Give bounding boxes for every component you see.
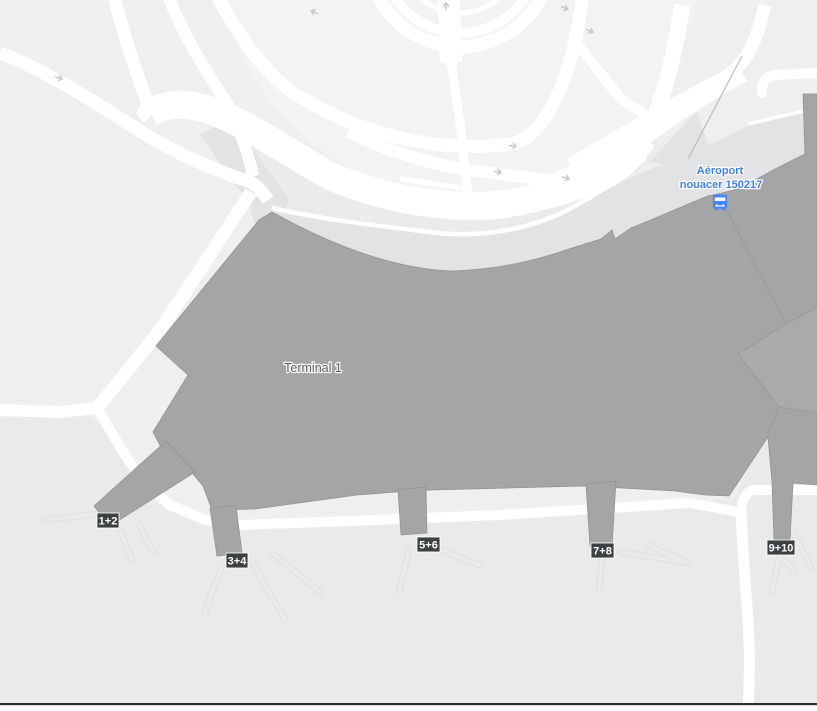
svg-text:5+6: 5+6 <box>419 540 438 552</box>
svg-text:3+4: 3+4 <box>228 556 248 568</box>
svg-text:nouacer 150217: nouacer 150217 <box>680 179 763 191</box>
svg-text:7+8: 7+8 <box>593 546 612 558</box>
svg-text:9+10: 9+10 <box>769 543 794 555</box>
svg-text:1+2: 1+2 <box>99 516 118 528</box>
svg-text:Terminal 1: Terminal 1 <box>284 361 342 375</box>
svg-text:Aéroport: Aéroport <box>697 165 744 177</box>
